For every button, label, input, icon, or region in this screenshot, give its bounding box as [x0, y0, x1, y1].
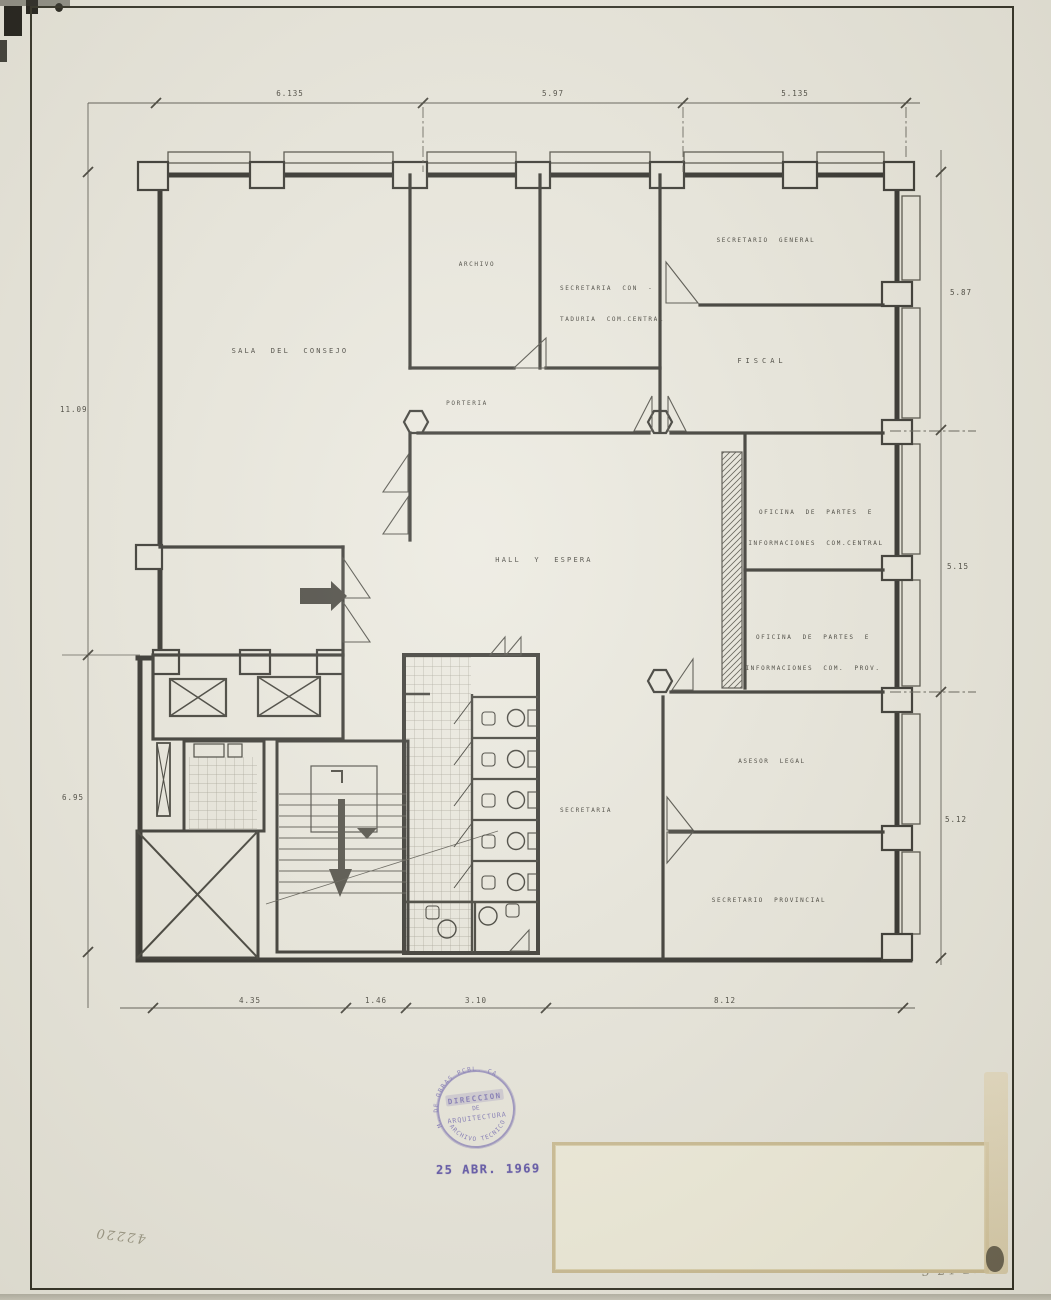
room-label-secretaria-contaduria-l2: TADURIA COM.CENTRAL	[560, 315, 670, 325]
room-label-archivo: ARCHIVO	[427, 260, 527, 270]
dim-bottom-3: 3.10	[446, 996, 506, 1005]
dim-top-1: 6.135	[260, 89, 320, 98]
scanned-floor-plan-sheet: M. DE OBRAS PCBL. CA. DIRECCION DE ARQUI…	[0, 0, 1051, 1300]
dim-right-3: 5.12	[945, 815, 979, 824]
room-label-oficina-partes-prov-l1: OFICINA DE PARTES E	[738, 633, 888, 643]
entrance-arrow	[300, 581, 347, 611]
stamp-line3: ARQUITECTURA	[447, 1110, 507, 1125]
room-label-secretaria-contaduria-l1: SECRETARIA CON -	[560, 284, 670, 294]
stamp-line1: DIRECCION	[447, 1091, 502, 1107]
ink-blot	[986, 1246, 1004, 1272]
dim-bottom-2: 1.46	[346, 996, 406, 1005]
dim-left-1: 11.09	[60, 405, 94, 414]
room-label-fiscal: FISCAL	[712, 356, 812, 368]
scan-artifact-blob	[4, 6, 22, 36]
dim-right-1: 5.87	[950, 288, 984, 297]
dim-right-2: 5.15	[947, 562, 981, 571]
room-label-secretaria: SECRETARIA	[521, 806, 651, 816]
room-label-oficina-partes-central-l2: INFORMACIONES COM.CENTRAL	[741, 539, 891, 549]
dim-bottom-1: 4.35	[220, 996, 280, 1005]
tiled-floors	[189, 657, 471, 951]
scan-artifact-blob	[0, 40, 7, 62]
plan-linework: M. DE OBRAS PCBL. CA. DIRECCION DE ARQUI…	[0, 0, 1051, 1300]
room-label-secretario-general: SECRETARIO GENERAL	[690, 236, 842, 246]
paper-patch	[552, 1142, 989, 1273]
stamp-line2: DE	[472, 1105, 480, 1113]
dim-bottom-4: 8.12	[695, 996, 755, 1005]
tape-streak	[984, 1072, 1008, 1274]
room-label-oficina-partes-prov-l2: INFORMACIONES COM. PROV.	[738, 664, 888, 674]
room-label-asesor-legal: ASESOR LEGAL	[697, 757, 847, 767]
dim-top-3: 5.135	[765, 89, 825, 98]
scan-bottom-edge	[0, 1294, 1051, 1300]
scan-artifact-smear	[0, 0, 70, 6]
room-label-porteria: PORTERIA	[417, 399, 517, 409]
room-label-secretario-provincial: SECRETARIO PROVINCIAL	[669, 896, 869, 906]
room-label-oficina-partes-central-l1: OFICINA DE PARTES E	[741, 508, 891, 518]
dim-left-2: 6.95	[62, 793, 96, 802]
stamp-seal: M. DE OBRAS PCBL. CA. DIRECCION DE ARQUI…	[428, 1061, 520, 1153]
room-label-sala-del-consejo: SALA DEL CONSEJO	[215, 346, 365, 358]
dim-top-2: 5.97	[523, 89, 583, 98]
date-stamp: 25 ABR. 1969	[436, 1161, 556, 1177]
room-label-hall-y-espera: HALL Y ESPERA	[469, 555, 619, 567]
